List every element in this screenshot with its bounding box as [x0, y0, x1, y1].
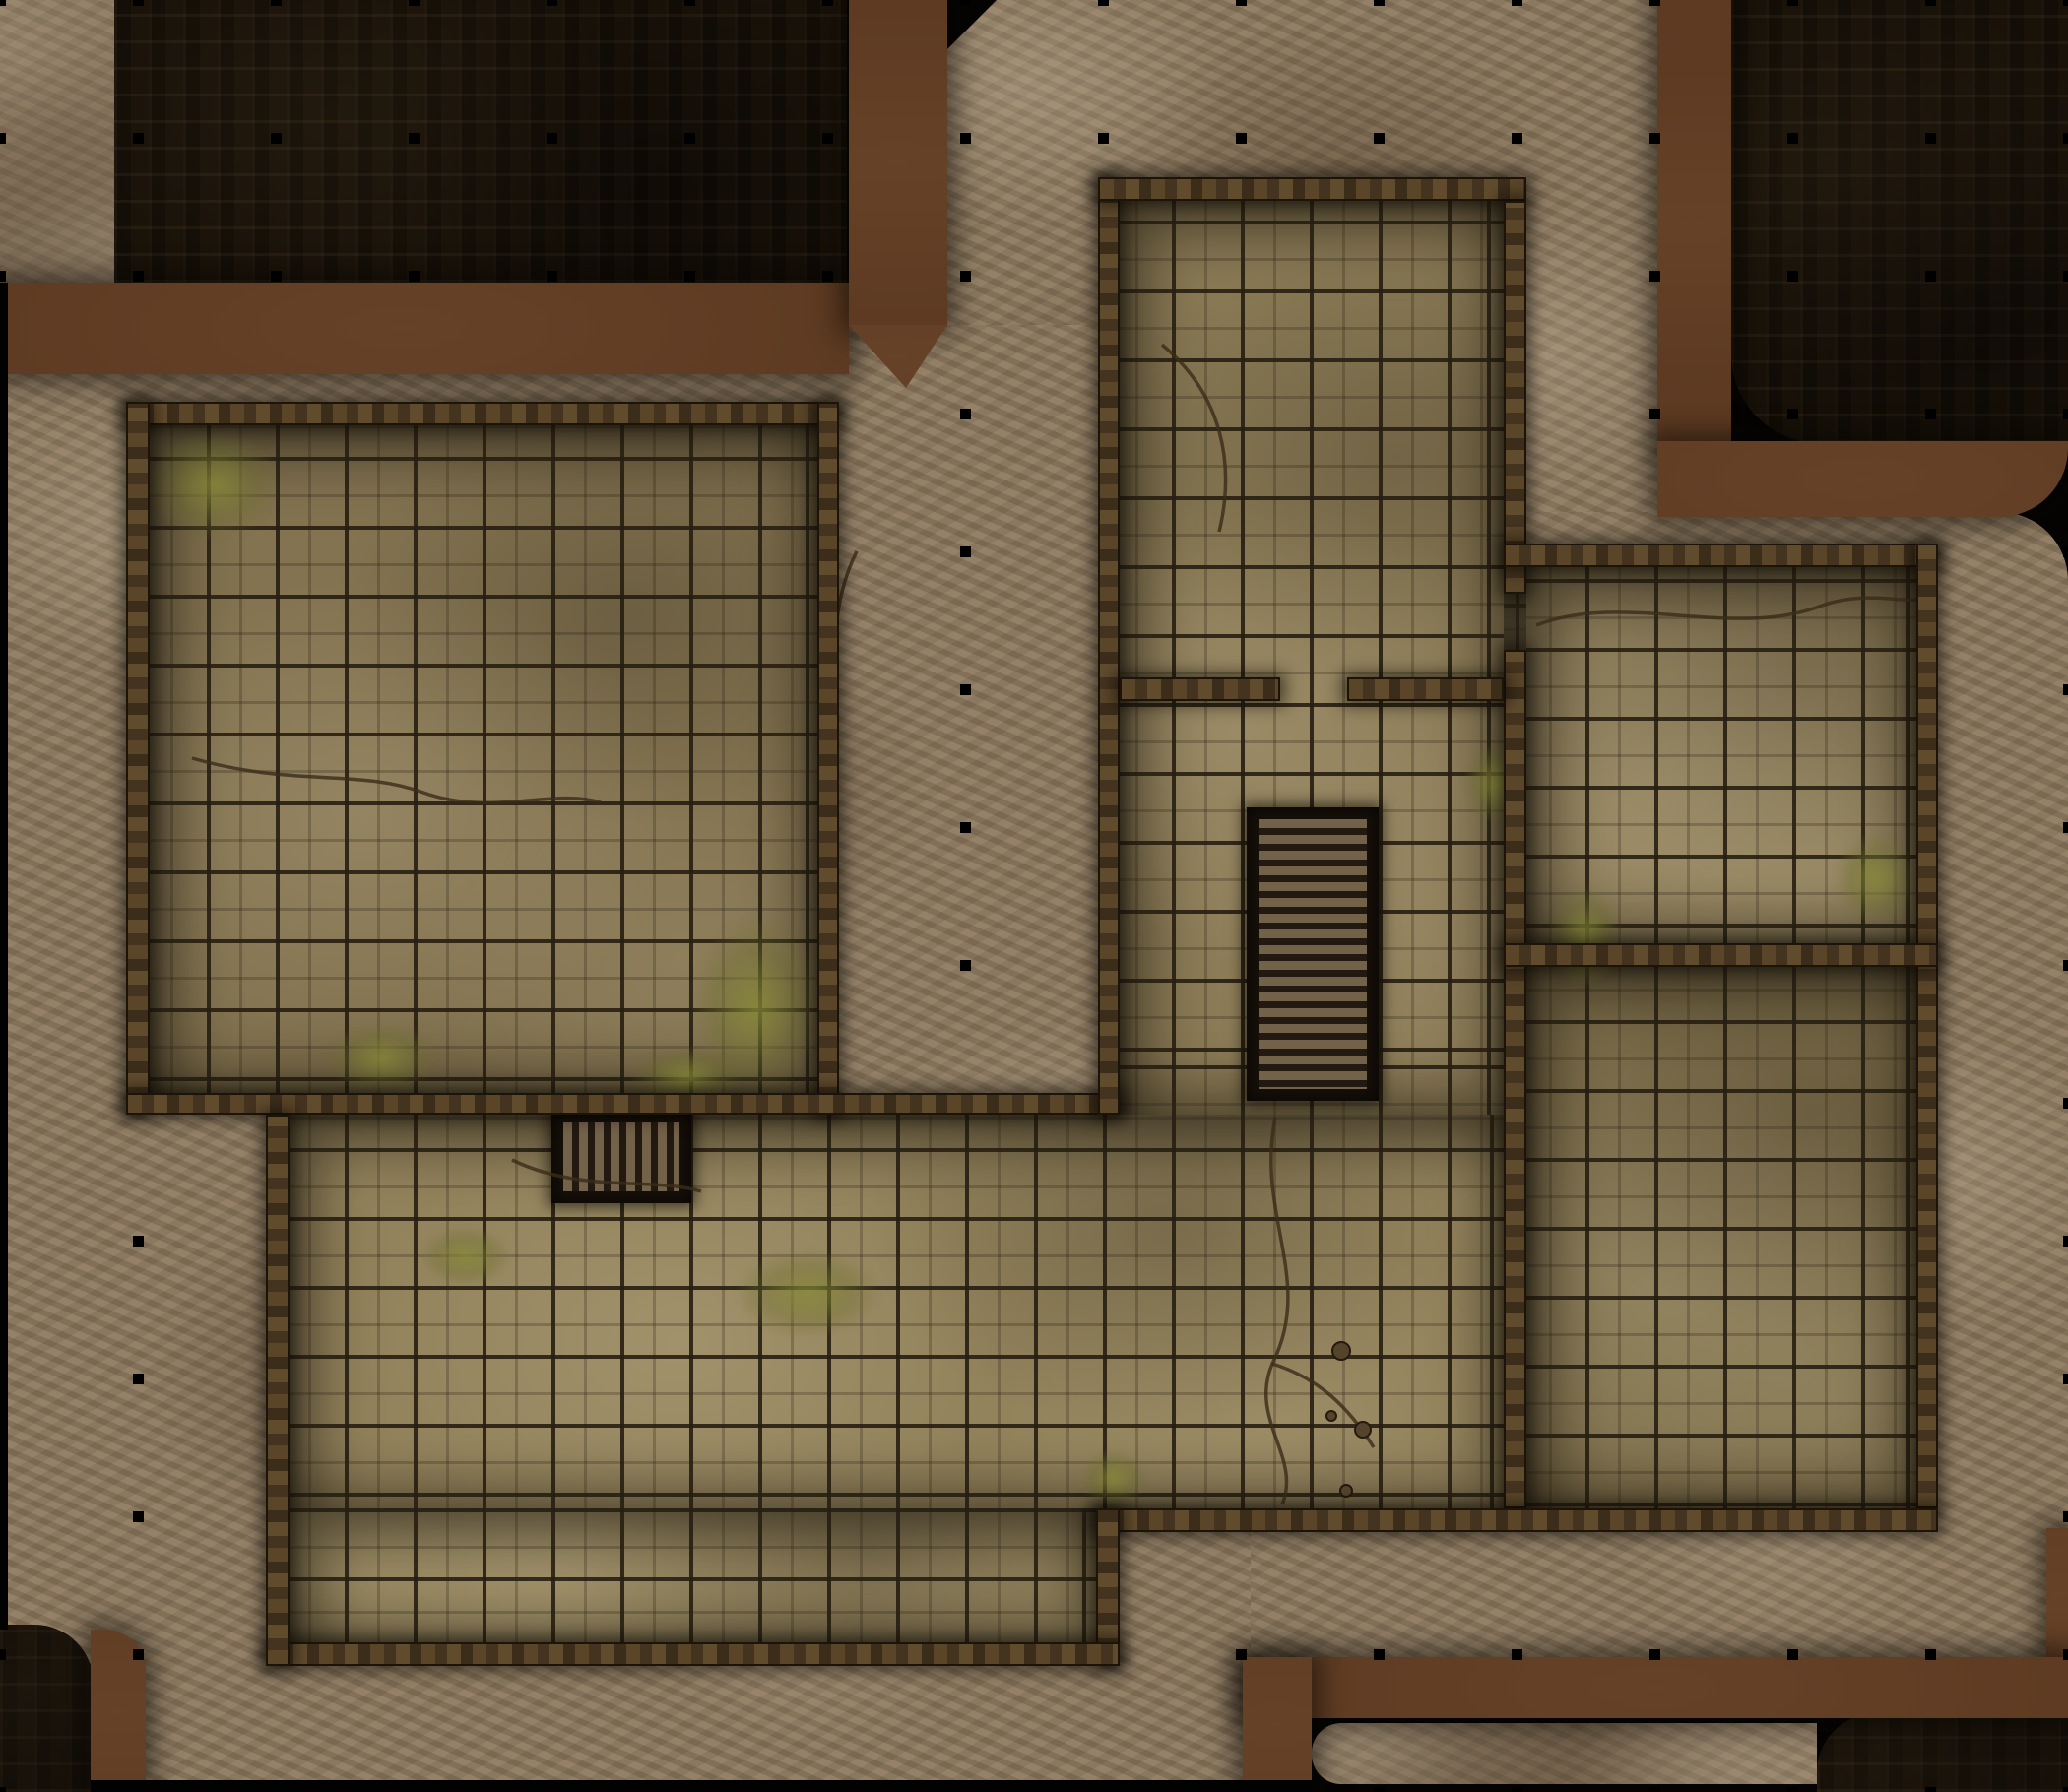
grid-dot	[547, 0, 557, 6]
grid-dot	[1649, 271, 1660, 282]
grid-dot	[1512, 1649, 1522, 1660]
wall-bottom-right-bottom	[1096, 1508, 1938, 1532]
wall-left-room-top	[126, 402, 839, 425]
grid-dot	[1374, 0, 1385, 6]
grid-dot	[133, 133, 144, 144]
grid-dot	[1787, 0, 1798, 6]
grid-dot	[2063, 1098, 2068, 1109]
grid-dot	[1374, 1787, 1385, 1792]
grid-dot	[133, 0, 144, 6]
grid-dot	[684, 133, 695, 144]
grid-dot	[960, 271, 971, 282]
band-bottom-right-horizontal	[1243, 1657, 2068, 1718]
grid-dot	[1512, 133, 1522, 144]
small-staircase	[551, 1111, 691, 1203]
moss-top-right-room	[1548, 884, 1622, 988]
moss-left-room-nw	[148, 428, 281, 542]
grid-dot	[1925, 271, 1936, 282]
grid-dot	[1649, 409, 1660, 419]
grid-dot	[822, 0, 833, 6]
right-doorway-floor-tile-grid	[1504, 594, 1526, 650]
dungeon-map-canvas	[0, 0, 2068, 1792]
grid-dot	[2063, 1787, 2068, 1792]
grid-dot	[1787, 133, 1798, 144]
grid-dot	[409, 271, 420, 282]
wall-right-vertical-lower	[1504, 650, 1526, 1508]
grid-dot	[0, 271, 6, 282]
grid-dot	[1649, 1787, 1660, 1792]
wall-hall-left	[1098, 177, 1120, 1115]
wall-mid-horizontal	[126, 1093, 1120, 1115]
band-topright-horizontal	[1657, 441, 2068, 517]
grid-dot	[1374, 1649, 1385, 1660]
grid-dot	[1236, 133, 1247, 144]
band-topright-vertical	[1657, 0, 1731, 445]
wall-top-right-room-top	[1504, 544, 1938, 567]
grid-dot	[960, 546, 971, 557]
grid-dot	[2063, 1374, 2068, 1384]
grid-dot	[960, 409, 971, 419]
main-staircase-treads	[1259, 819, 1367, 1089]
grid-dot	[133, 1236, 144, 1247]
rock-bottom-strip	[1312, 1723, 1817, 1784]
grid-dot	[2063, 1236, 2068, 1247]
wall-stub-left	[1120, 677, 1280, 701]
grid-dot	[0, 1787, 6, 1792]
wall-left-room-left	[126, 402, 150, 1115]
grid-dot	[2063, 133, 2068, 144]
moss-top-right-room-e	[1834, 832, 1917, 926]
grid-dot	[2063, 0, 2068, 6]
band-right-edge	[2046, 1528, 2068, 1661]
grid-dot	[0, 133, 6, 144]
grid-dot	[2063, 546, 2068, 557]
grid-dot	[960, 684, 971, 695]
main-staircase	[1247, 807, 1379, 1101]
bottom-hall-lower-floor-tile-grid	[290, 1508, 1096, 1642]
void-top-right	[1731, 0, 2068, 443]
bottom-hall-floor-tile-grid	[290, 1115, 1504, 1508]
grid-dot	[1512, 1787, 1522, 1792]
wall-bottom-hall-left	[266, 1115, 290, 1666]
grid-dot	[2063, 1649, 2068, 1660]
edge-strip-left	[0, 283, 8, 1630]
small-staircase-treads	[563, 1122, 679, 1191]
grid-dot	[1374, 133, 1385, 144]
grid-dot	[2063, 271, 2068, 282]
grid-dot	[0, 0, 6, 6]
moss-bottom-hall-2	[419, 1226, 512, 1287]
grid-dot	[1787, 271, 1798, 282]
grid-dot	[2063, 684, 2068, 695]
grid-dot	[409, 133, 420, 144]
grid-dot	[822, 133, 833, 144]
grid-dot	[2063, 822, 2068, 833]
bottom-hall-lower-floor	[290, 1508, 1096, 1642]
wall-bottom-hall-bottom	[266, 1642, 1120, 1666]
grid-dot	[960, 0, 971, 6]
grid-dot	[1236, 0, 1247, 6]
grid-dot	[1649, 0, 1660, 6]
grid-dot	[1098, 133, 1109, 144]
wall-top-room-top	[1098, 177, 1526, 201]
grid-dot	[133, 271, 144, 282]
grid-dot	[684, 271, 695, 282]
grid-dot	[1925, 409, 1936, 419]
grid-dot	[133, 1511, 144, 1522]
bottom-right-room-floor-tile-grid	[1526, 967, 1916, 1508]
grid-dot	[2063, 960, 2068, 971]
grid-dot	[271, 271, 282, 282]
grid-dot	[133, 1374, 144, 1384]
grid-dot	[547, 271, 557, 282]
bottom-hall-floor	[290, 1115, 1504, 1508]
band-top-left-horizontal	[0, 283, 849, 374]
moss-left-room-sw	[325, 1022, 438, 1093]
grid-dot	[1925, 133, 1936, 144]
grid-dot	[684, 0, 695, 6]
band-bottom-channel	[1243, 1657, 1312, 1792]
grid-dot	[1649, 1649, 1660, 1660]
right-doorway-floor	[1504, 594, 1526, 650]
grid-dot	[1787, 409, 1798, 419]
grid-dot	[2063, 409, 2068, 419]
grid-dot	[960, 822, 971, 833]
grid-dot	[1512, 0, 1522, 6]
wall-stub-right	[1347, 677, 1504, 701]
grid-dot	[0, 1649, 6, 1660]
grid-dot	[547, 133, 557, 144]
wall-left-room-right	[817, 402, 839, 1115]
void-bottom-left	[0, 1625, 94, 1792]
grid-dot	[2063, 1511, 2068, 1522]
grid-dot	[1925, 0, 1936, 6]
bottom-right-room-floor	[1526, 967, 1916, 1508]
band-top-vertical	[849, 0, 947, 327]
grid-dot	[960, 133, 971, 144]
grid-dot	[960, 960, 971, 971]
grid-dot	[271, 0, 282, 6]
grid-dot	[271, 133, 282, 144]
grid-dot	[1925, 1787, 1936, 1792]
wall-between-right-rooms	[1504, 943, 1938, 967]
grid-dot	[1787, 1649, 1798, 1660]
grid-dot	[409, 0, 420, 6]
wall-right-rooms-right	[1916, 544, 1938, 1508]
grid-dot	[1925, 1649, 1936, 1660]
grid-dot	[1787, 1787, 1798, 1792]
wall-right-vertical-upper	[1504, 201, 1526, 594]
grid-dot	[133, 1649, 144, 1660]
grid-dot	[1236, 1649, 1247, 1660]
grid-dot	[1649, 133, 1660, 144]
moss-bottom-hall-3	[1079, 1449, 1148, 1506]
moss-bottom-hall-1	[734, 1248, 881, 1339]
void-top-left	[114, 0, 847, 283]
grid-dot	[1098, 0, 1109, 6]
void-bottom-right	[1817, 1713, 2068, 1792]
edge-strip-bottom	[91, 1780, 1312, 1792]
grid-dot	[822, 271, 833, 282]
